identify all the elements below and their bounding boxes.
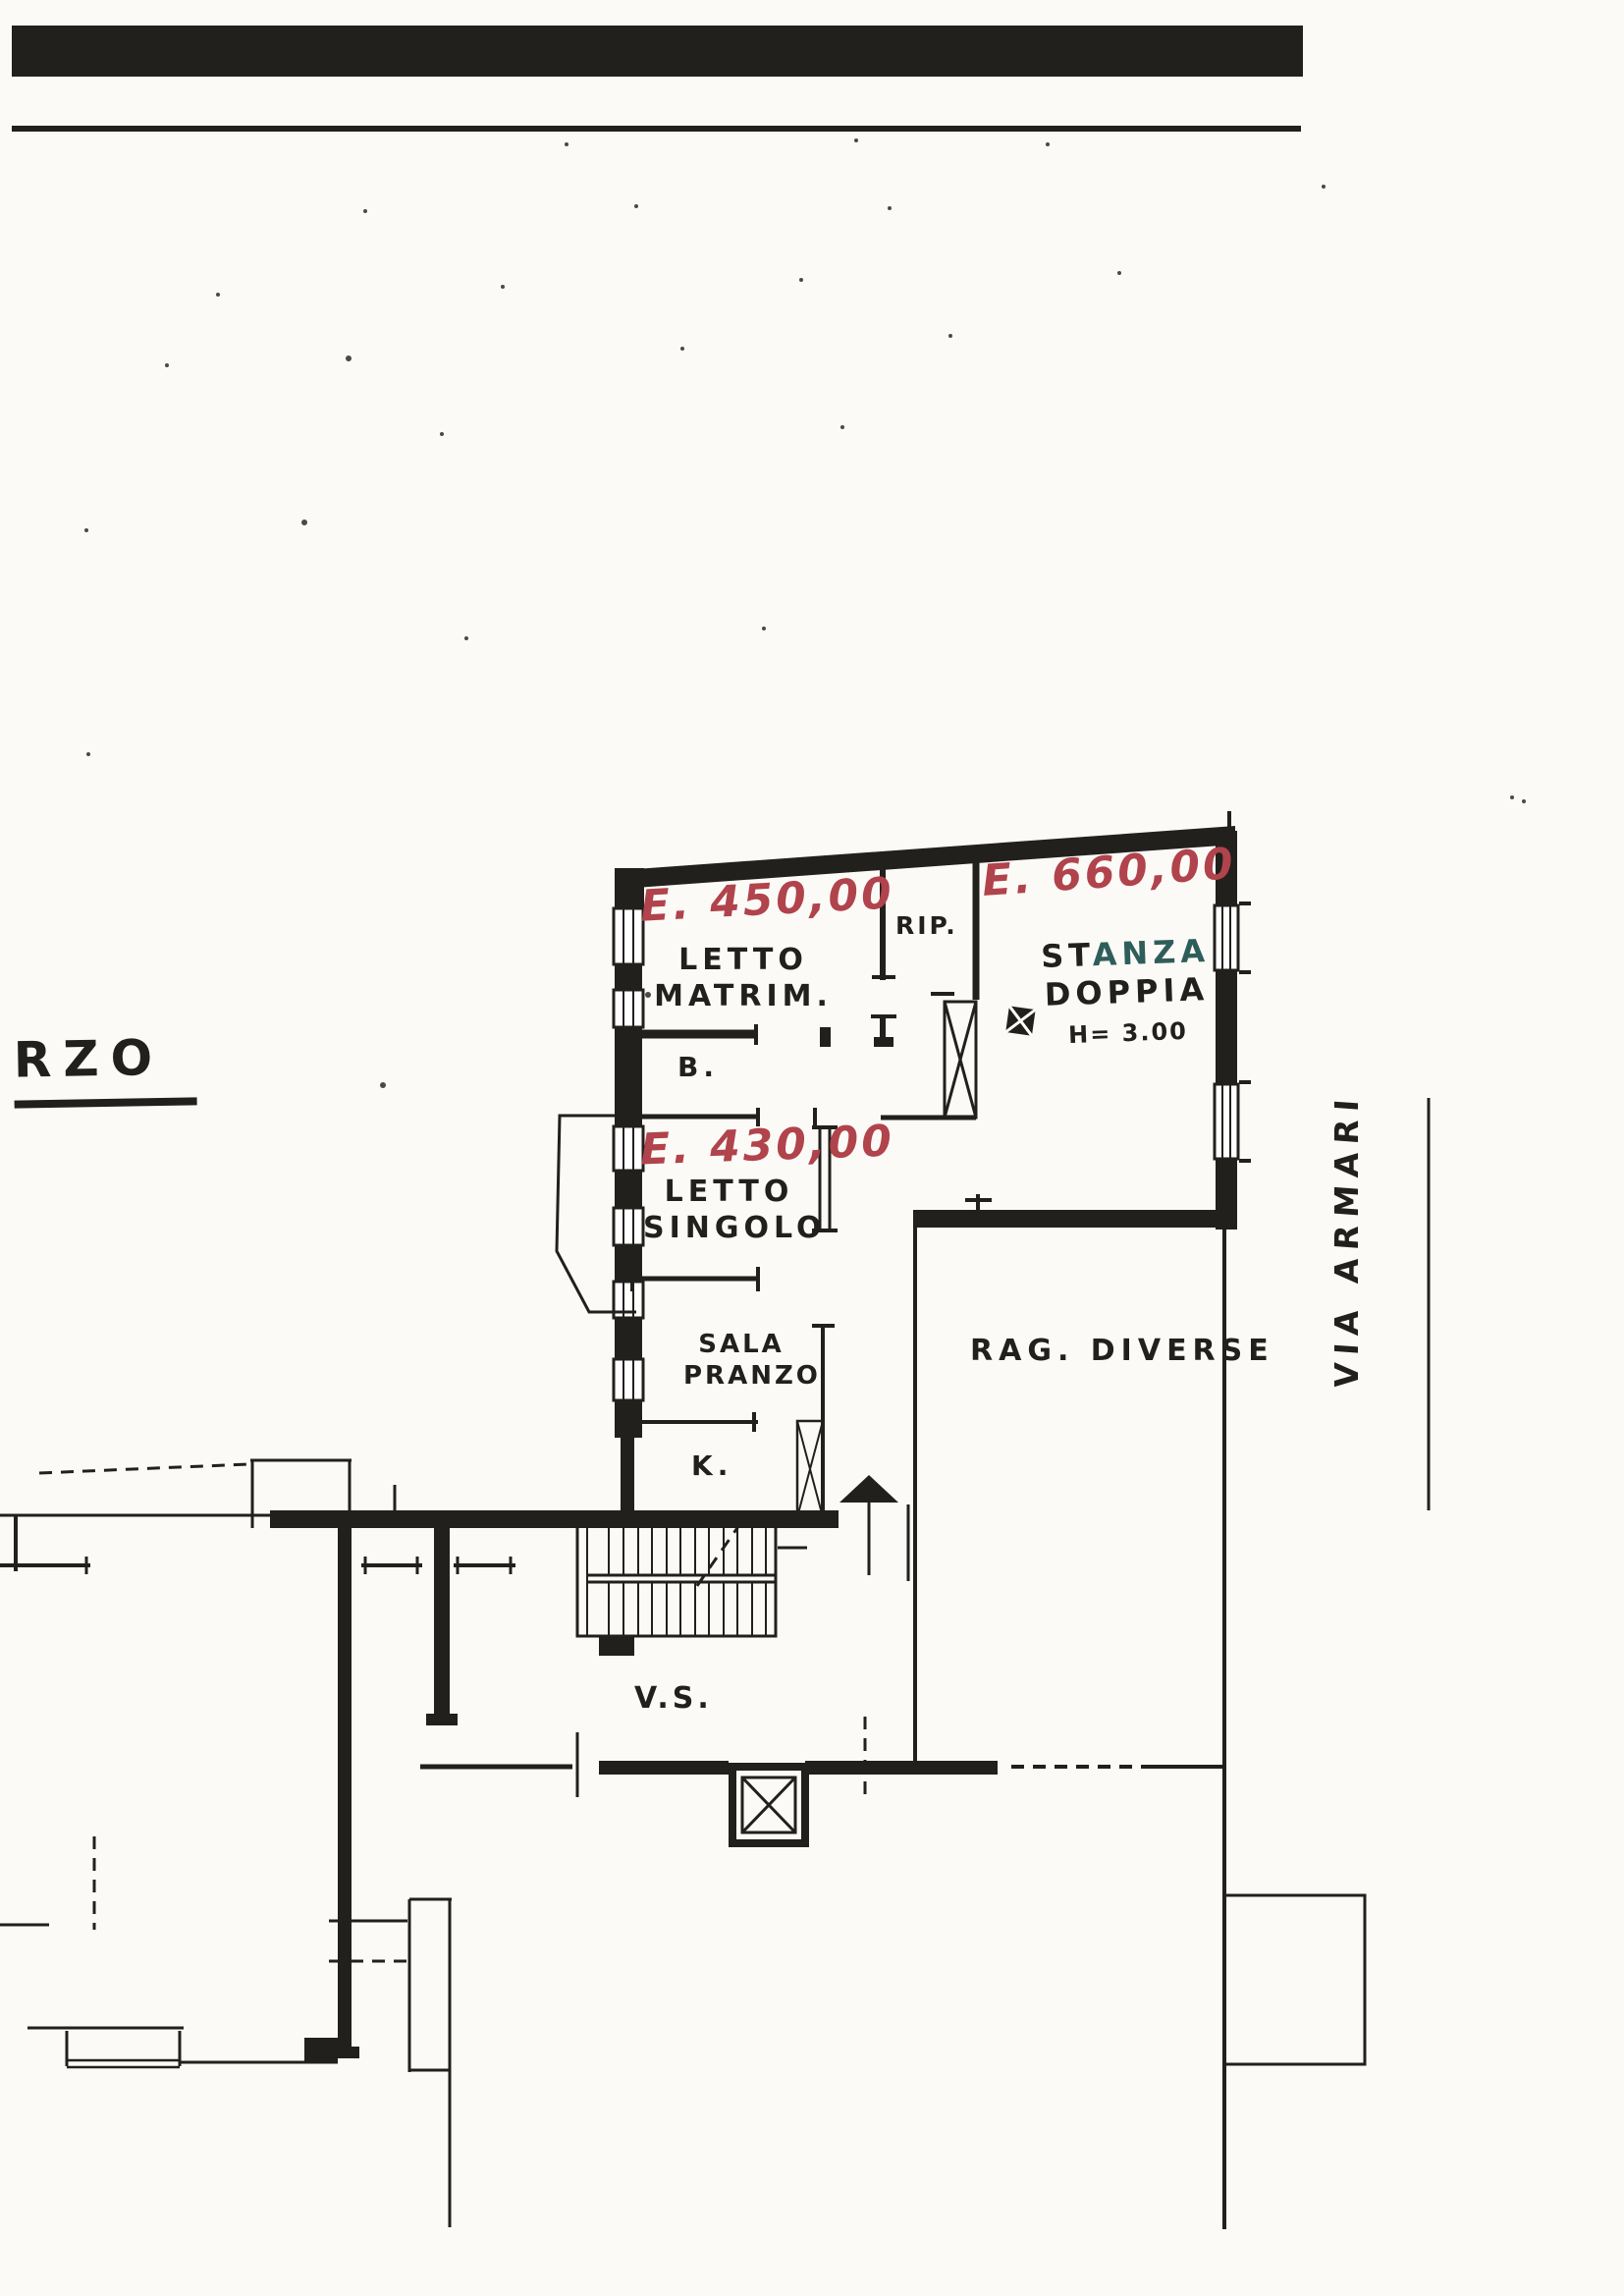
room-label-part: ANZA bbox=[1092, 932, 1211, 973]
room-label-line: SALA bbox=[698, 1330, 785, 1359]
room-label-part: ST bbox=[1041, 936, 1094, 975]
staircase bbox=[577, 1520, 807, 1656]
window-icon bbox=[1215, 905, 1238, 970]
room-label-line: DOPPIA bbox=[1044, 970, 1210, 1013]
room-label-ripostiglio: RIP. bbox=[895, 911, 958, 942]
window-icon bbox=[614, 908, 643, 964]
stairwell-bottom-and-elevator bbox=[420, 1732, 895, 1843]
plan-fragment-title: RZO bbox=[13, 1027, 196, 1108]
price-annotation-letto-singolo: E. 430,00 bbox=[639, 1115, 895, 1176]
lower-left-outlines bbox=[0, 1836, 452, 2227]
window-icon bbox=[614, 990, 643, 1027]
window-icon bbox=[614, 1359, 643, 1400]
room-label-line: PRANZO bbox=[683, 1361, 821, 1391]
elevator-icon bbox=[732, 1767, 805, 1843]
room-label-sala-pranzo: SALA PRANZO bbox=[683, 1330, 799, 1392]
stair-treads bbox=[609, 1520, 766, 1636]
entrance-arrow-icon bbox=[839, 1475, 908, 1581]
room-label-line: LETTO bbox=[665, 1175, 794, 1209]
room-label-line: MATRIM. bbox=[654, 979, 833, 1013]
room-label-letto-matrim: LETTO MATRIM. bbox=[650, 943, 837, 1014]
room-label-line: SINGOLO bbox=[643, 1211, 827, 1245]
scanned-floor-plan-page: RZO E. 450,00 E. 660,00 E. 430,00 LETTO … bbox=[0, 0, 1624, 2296]
double-door-icon bbox=[797, 1421, 823, 1517]
street-name-label: VIA ARMARI bbox=[1327, 1082, 1367, 1390]
room-label-stanza-doppia: STANZA DOPPIA H= 3.00 bbox=[1034, 932, 1219, 1053]
room-label-vano-scala: V.S. bbox=[634, 1681, 713, 1718]
room-label-line: LETTO bbox=[678, 943, 808, 977]
room-label-bagno: B. bbox=[677, 1051, 719, 1084]
closet-door-icon bbox=[945, 1002, 976, 1118]
room-label-letto-singolo: LETTO SINGOLO bbox=[643, 1175, 815, 1246]
interior-partitions bbox=[628, 1024, 838, 1517]
furniture-mark-icon bbox=[1005, 1006, 1035, 1035]
window-icon bbox=[614, 1208, 643, 1245]
stairwell-walls bbox=[0, 1460, 839, 2058]
rag-diverse-walls bbox=[865, 1228, 1224, 2229]
lower-right-outlines bbox=[1224, 1098, 1429, 2064]
room-height-note: H= 3.00 bbox=[1068, 1017, 1189, 1049]
room-label-rag-diverse: RAG. DIVERSE bbox=[970, 1334, 1274, 1370]
room-label-cucina: K. bbox=[691, 1449, 732, 1483]
window-icon bbox=[1215, 1084, 1238, 1159]
